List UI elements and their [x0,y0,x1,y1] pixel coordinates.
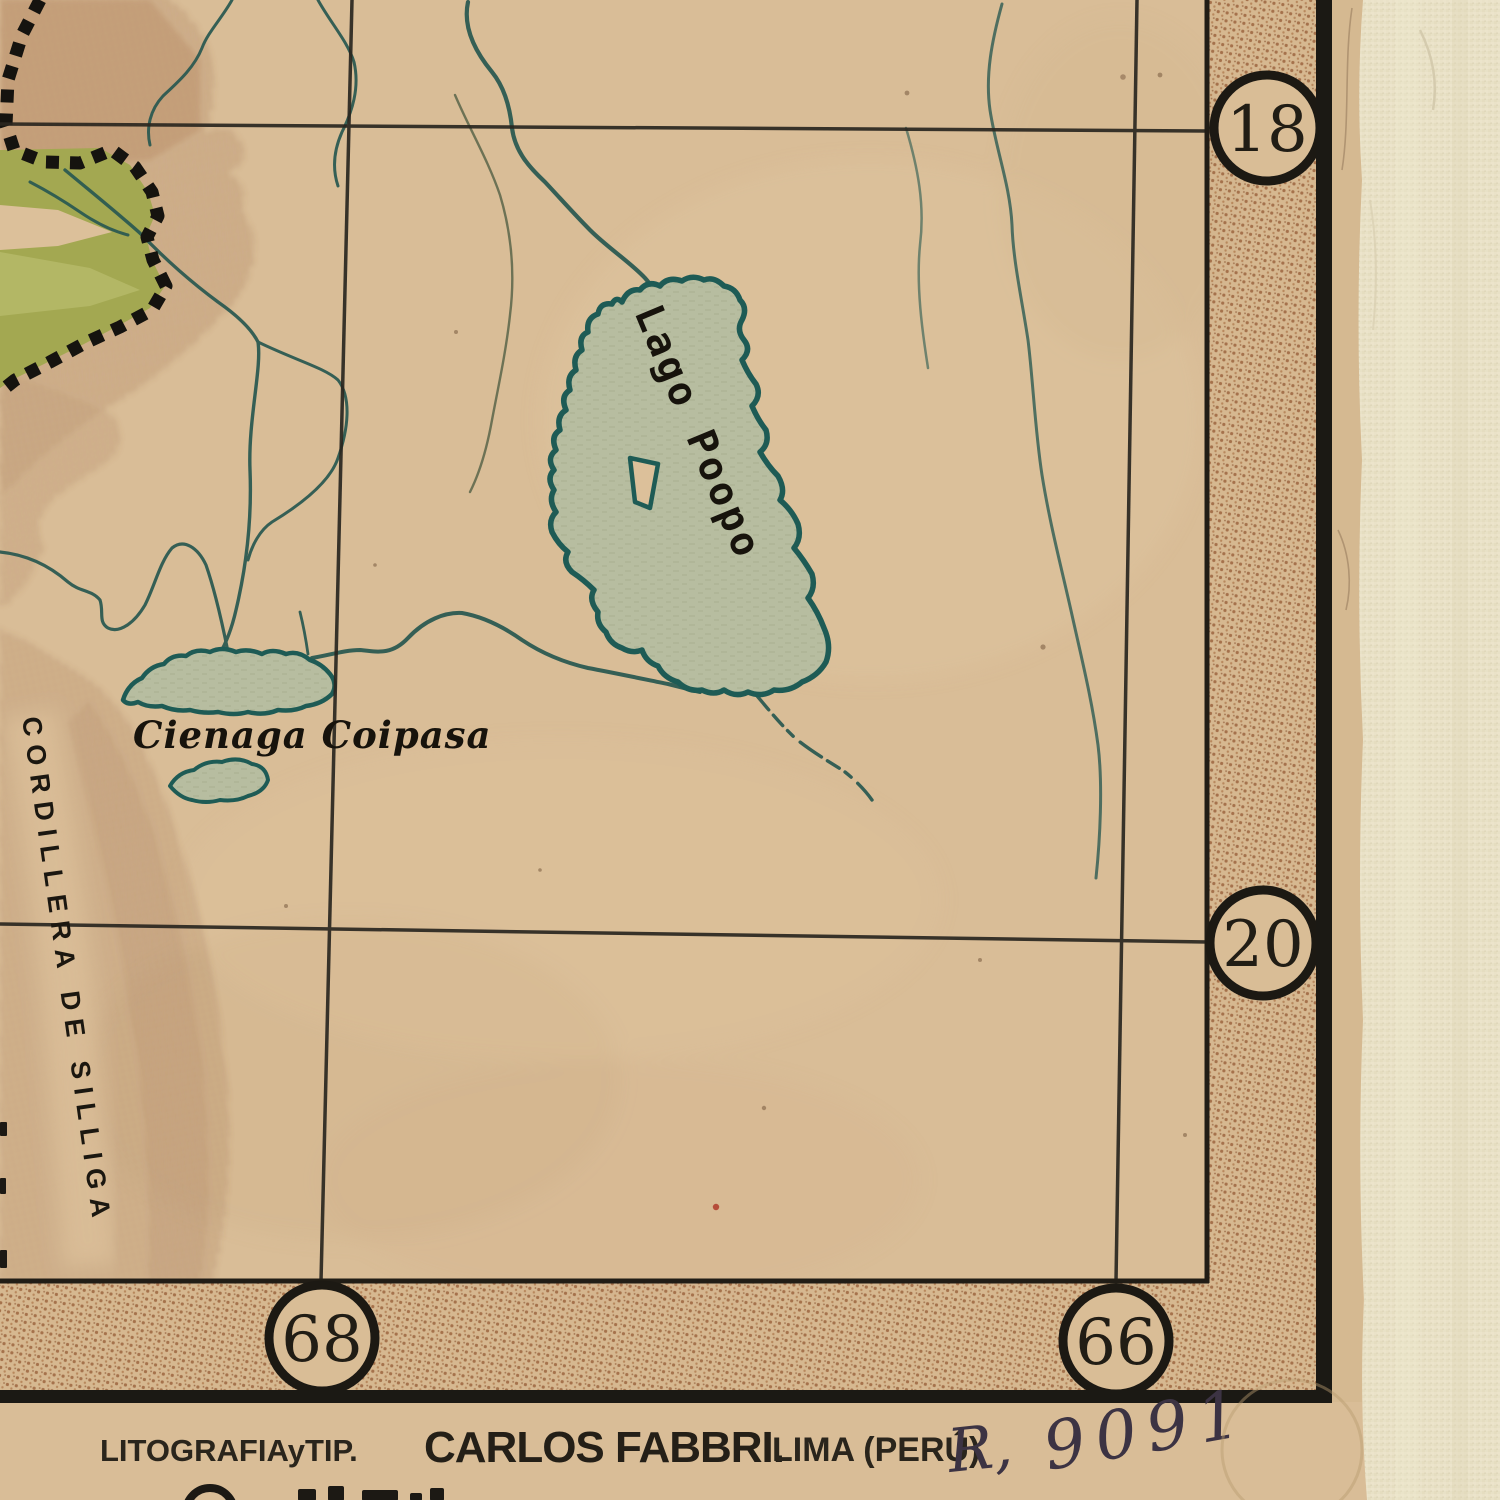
meridian-68-badge: 68 [269,1285,375,1391]
svg-text:66: 66 [1075,1306,1156,1380]
map-sheet: Lago Poopo Cienaga Coipasa CORDILLERA DE… [0,0,1500,1500]
svg-text:68: 68 [281,1303,362,1377]
imprint-litho: LITOGRAFIAyTIP. [100,1433,358,1468]
svg-text:20: 20 [1222,908,1303,982]
meridian-66-badge: 66 [1063,1288,1169,1394]
note-prefix: R, [943,1411,1015,1487]
map-canvas: Lago Poopo Cienaga Coipasa CORDILLERA DE… [0,0,1500,1500]
parallel-18-badge: 18 [1214,75,1320,181]
imprint-printer: CARLOS FABBRI. [424,1423,784,1472]
red-speck [713,1204,719,1210]
marsh-label: Cienaga Coipasa [133,713,491,757]
parallel-20-badge: 20 [1210,890,1316,996]
linen-backing [1359,0,1500,1500]
svg-text:18: 18 [1226,93,1307,167]
